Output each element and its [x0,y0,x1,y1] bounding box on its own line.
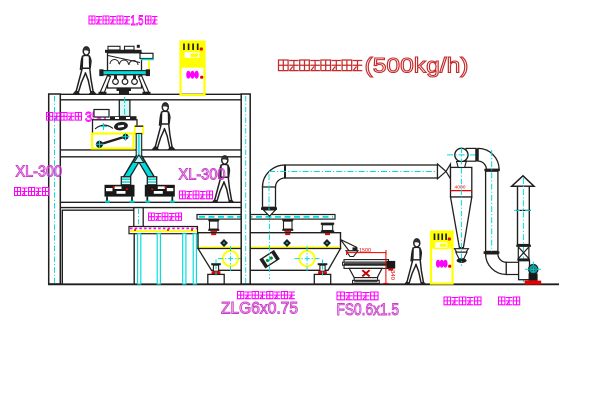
svg-text:XL-300: XL-300 [16,164,63,181]
svg-text:XL-300: XL-300 [179,167,226,184]
svg-text:FS0.6x1.5: FS0.6x1.5 [337,300,400,319]
svg-text:1500: 1500 [359,248,371,254]
svg-text:ZLG6x0.75: ZLG6x0.75 [221,300,298,318]
svg-text:4000: 4000 [455,185,466,190]
svg-text:(500kg/h): (500kg/h) [365,54,469,78]
svg-text:340: 340 [389,270,395,280]
svg-text:1.5: 1.5 [131,12,144,28]
